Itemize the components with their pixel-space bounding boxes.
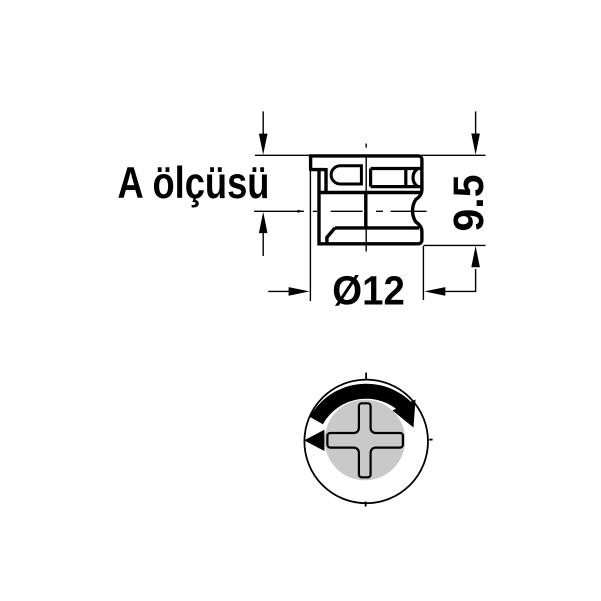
svg-text:Ø12: Ø12 [332,267,405,313]
svg-text:A ölçüsü: A ölçüsü [118,159,270,208]
svg-text:9.5: 9.5 [445,175,493,232]
